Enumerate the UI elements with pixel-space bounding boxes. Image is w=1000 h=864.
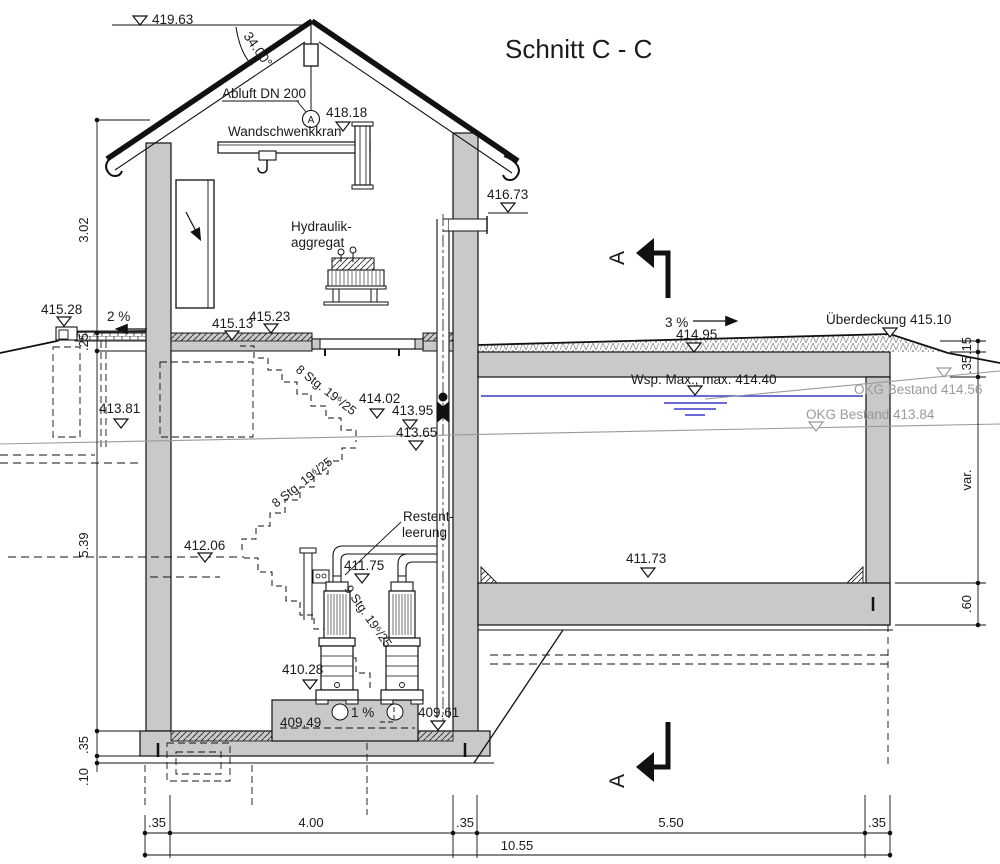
hydraulic-label-2: aggregat xyxy=(291,235,345,250)
slope-left-label: 2 % xyxy=(107,309,130,324)
okg-lower-label: OKG Bestand 413.84 xyxy=(806,407,935,422)
slope-arrows xyxy=(117,321,736,329)
level-pipe-right: 416.73 xyxy=(487,187,528,202)
level-pump-pipe: 411.75 xyxy=(344,558,384,573)
vent-label: Abluft DN 200 xyxy=(222,86,306,101)
hydraulic-label-1: Hydraulik- xyxy=(291,219,352,234)
haunch-left xyxy=(481,567,497,583)
crane-hook xyxy=(258,160,267,173)
level-crane: 418.18 xyxy=(326,105,367,120)
excavation-line xyxy=(474,630,563,763)
hydraulic-unit-top xyxy=(332,258,374,270)
haunch-right xyxy=(847,567,863,583)
crane-column xyxy=(355,126,370,185)
slope-sump-label: 1 % xyxy=(351,705,374,720)
level-ground-right: 414.95 xyxy=(676,327,717,342)
level-cover: 415.23 xyxy=(249,309,290,324)
level-stair-mid: 413.95 xyxy=(392,403,433,418)
dim-right-1: .15 xyxy=(959,337,974,355)
section-marker-bottom: A xyxy=(606,722,668,788)
dim-left-3: 5.39 xyxy=(76,532,91,557)
equipment xyxy=(176,122,388,308)
dim-left-1: 3.02 xyxy=(76,217,91,242)
basin-floor-slab xyxy=(478,583,890,625)
level-ridge: 419.63 xyxy=(152,12,193,27)
stair-label-1: 8 Stg. 19⁶/25 xyxy=(293,362,359,418)
level-basin-floor: 411.73 xyxy=(626,551,666,566)
drain-label-2: leerung xyxy=(402,525,447,540)
dim-bottom-5: .35 xyxy=(868,815,886,830)
section-arrow-top xyxy=(636,238,654,268)
roof-vent-pipe xyxy=(304,44,318,66)
stair-opening-grating xyxy=(312,339,423,349)
section-drawing: A A A Schnitt C - C 419.63 34.00° Abluft… xyxy=(0,0,1000,864)
level-drain: 413.81 xyxy=(99,401,140,416)
max-water-label: Wsp. Max., max. 414.40 xyxy=(631,372,777,387)
crane-beam xyxy=(218,142,370,153)
drain-pump xyxy=(313,570,329,583)
drain-label-1: Restent- xyxy=(403,509,454,524)
dim-bottom-total: 10.55 xyxy=(501,838,534,853)
cover-depth-label: Überdeckung 415.10 xyxy=(826,312,951,327)
level-floor: 415.13 xyxy=(212,316,253,331)
level-stair-landing: 413.65 xyxy=(396,425,437,440)
dim-bottom-3: .35 xyxy=(456,815,474,830)
dim-bottom-4: 5.50 xyxy=(658,815,683,830)
stair-label-2: 8 Stg. 19⁶/25 xyxy=(269,455,335,511)
dim-bottom-2: 4.00 xyxy=(298,815,323,830)
roof-right-slope xyxy=(312,21,518,161)
dim-right-3: var. xyxy=(959,470,974,491)
level-lower-landing: 412.06 xyxy=(184,538,225,553)
dim-left-5: .10 xyxy=(76,768,91,786)
crane-trolley xyxy=(259,151,276,160)
section-arrow-bottom xyxy=(636,752,654,782)
level-pedestal: 410.28 xyxy=(282,662,323,677)
structure xyxy=(136,133,890,763)
level-floor-low: 409.49 xyxy=(280,715,321,730)
drainage-trench xyxy=(160,362,253,437)
drawing-canvas: A A A Schnitt C - C 419.63 34.00° Abluft… xyxy=(0,0,1000,864)
section-letter-top: A xyxy=(606,251,629,265)
section-marker-top: A xyxy=(606,238,668,298)
crane-label: Wandschwenkkran xyxy=(228,124,342,139)
level-exterior-left: 415.28 xyxy=(41,302,82,317)
dim-left-2: .25 xyxy=(76,333,91,351)
stair-flight-2 xyxy=(242,448,356,552)
okg-upper-label: OKG Bestand 414.56 xyxy=(854,382,982,397)
dim-left-4: .35 xyxy=(76,736,91,754)
level-sump: 409.61 xyxy=(418,705,459,720)
dim-right-4: .60 xyxy=(959,595,974,613)
labels-low: 410.28 409.49 1 % 409.61 xyxy=(280,662,459,730)
dim-right-2: .35 xyxy=(959,356,974,374)
section-letter-bottom: A xyxy=(606,774,629,788)
dim-bottom-1: .35 xyxy=(148,815,166,830)
drawing-title: Schnitt C - C xyxy=(505,34,652,64)
